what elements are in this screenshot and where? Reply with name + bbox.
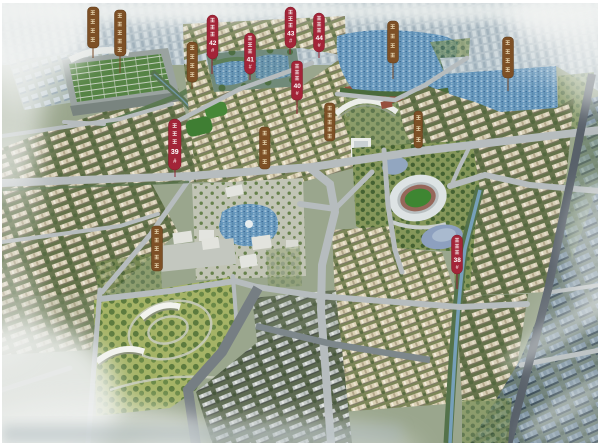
svg-text:42: 42 [209,40,217,47]
svg-text:43: 43 [287,31,295,38]
svg-text:41: 41 [247,57,255,64]
svg-text:44: 44 [316,35,324,42]
svg-text:40: 40 [294,83,302,90]
svg-text:39: 39 [171,149,179,156]
svg-text:38: 38 [454,257,462,264]
